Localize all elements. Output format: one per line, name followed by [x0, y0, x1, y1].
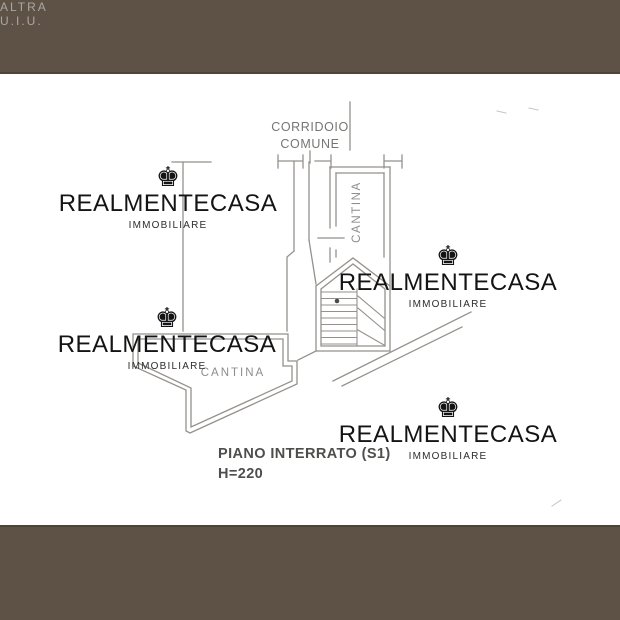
watermark-mid-right: ♚ REALMENTECASA IMMOBILIARE — [318, 243, 578, 310]
crown-icon: ♚ — [37, 305, 297, 332]
watermark-bottom-right: ♚ REALMENTECASA IMMOBILIARE — [318, 395, 578, 462]
listing-photo-canvas: CORRIDOIO COMUNE CANTINA CANTINA ALTRA U… — [0, 0, 620, 620]
boundary-diagonal — [333, 312, 471, 386]
crown-icon: ♚ — [38, 164, 298, 191]
corridor-label: CORRIDOIO COMUNE — [250, 119, 370, 153]
watermark-title: REALMENTECASA — [318, 271, 578, 295]
floor-height-label: H=220 — [218, 466, 263, 482]
watermark-title: REALMENTECASA — [37, 333, 297, 357]
cantina-right-label: CANTINA — [351, 172, 363, 252]
watermark-subtitle: IMMOBILIARE — [38, 221, 298, 231]
crown-icon: ♚ — [318, 395, 578, 422]
crown-icon: ♚ — [318, 243, 578, 270]
watermark-top-left: ♚ REALMENTECASA IMMOBILIARE — [38, 164, 298, 231]
watermark-title: REALMENTECASA — [318, 423, 578, 447]
corridor-label-line1: CORRIDOIO — [250, 119, 370, 136]
corridor-label-line2: COMUNE — [250, 136, 370, 153]
watermark-mid-left: ♚ REALMENTECASA IMMOBILIARE — [37, 305, 297, 372]
watermark-title: REALMENTECASA — [38, 192, 298, 216]
watermark-subtitle: IMMOBILIARE — [37, 362, 297, 372]
watermark-subtitle: IMMOBILIARE — [318, 452, 578, 462]
watermark-subtitle: IMMOBILIARE — [318, 300, 578, 310]
